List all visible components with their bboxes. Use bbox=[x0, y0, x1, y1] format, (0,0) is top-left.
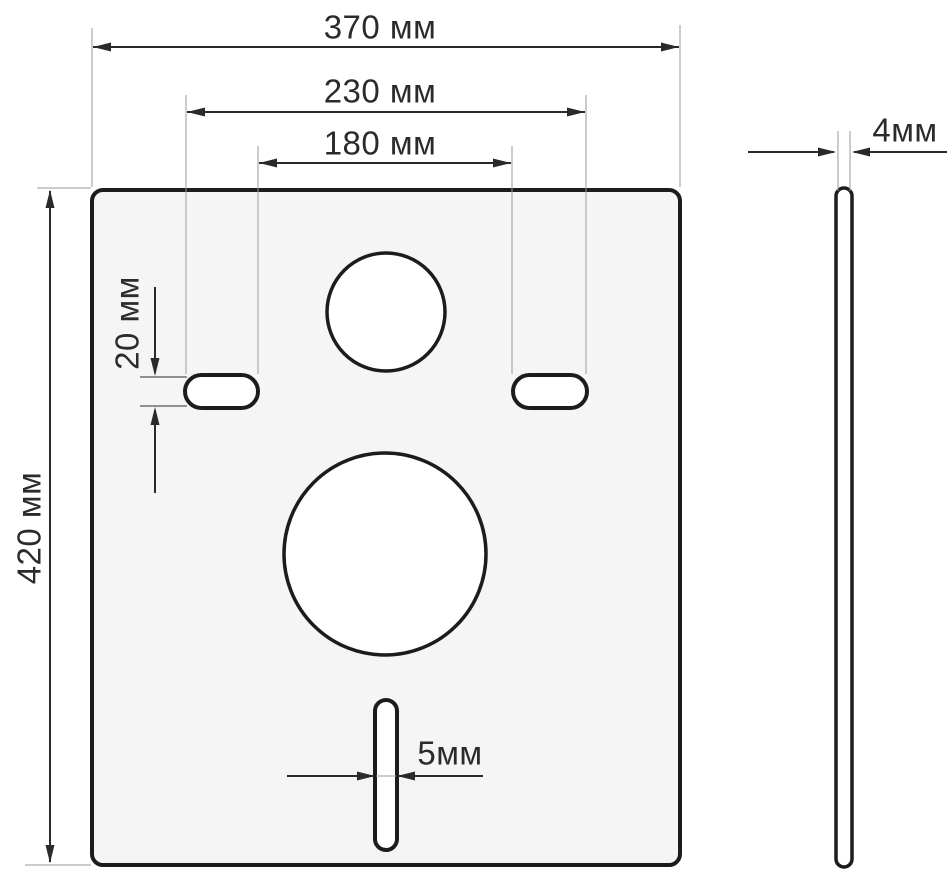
top-circle-hole bbox=[327, 253, 445, 371]
arrow-left-icon bbox=[187, 108, 205, 117]
large-circle-hole bbox=[284, 453, 486, 655]
dim-label-slot-width: 5мм bbox=[417, 737, 482, 770]
dim-label-holes-outer: 230 мм bbox=[324, 75, 437, 108]
dim-label-thickness: 4мм bbox=[872, 114, 937, 147]
right-oval-hole bbox=[513, 375, 587, 408]
dimension-4 bbox=[748, 148, 947, 157]
dim-label-holes-inner: 180 мм bbox=[324, 127, 437, 160]
plate-side-view bbox=[836, 188, 852, 867]
arrow-left-icon bbox=[93, 43, 111, 52]
bottom-slot-hole bbox=[375, 700, 397, 850]
arrow-down-icon bbox=[46, 845, 55, 863]
front-view bbox=[92, 190, 680, 865]
arrow-right-icon bbox=[818, 148, 836, 157]
arrow-right-icon bbox=[493, 159, 511, 168]
dim-label-oval-height: 20 мм bbox=[111, 276, 144, 370]
side-view bbox=[836, 188, 852, 867]
dim-label-height: 420 мм bbox=[13, 472, 46, 585]
arrow-left-icon bbox=[259, 159, 277, 168]
arrow-right-icon bbox=[567, 108, 585, 117]
left-oval-hole bbox=[185, 375, 258, 408]
arrow-up-icon bbox=[46, 190, 55, 208]
dim-label-width: 370 мм bbox=[324, 11, 437, 44]
technical-drawing: 370 мм 230 мм 180 мм 420 мм 20 мм 5мм 4м… bbox=[0, 0, 948, 884]
arrow-right-icon bbox=[661, 43, 679, 52]
